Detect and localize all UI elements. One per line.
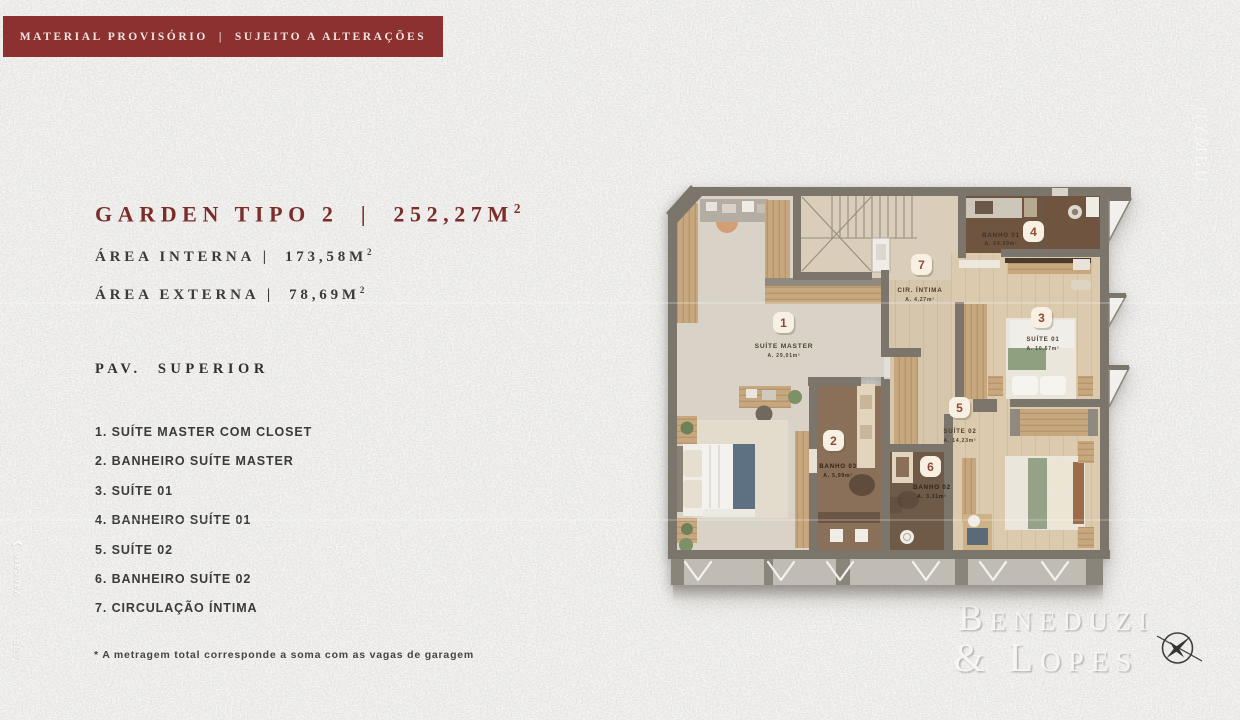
svg-text:2: 2 <box>830 434 837 448</box>
svg-text:7: 7 <box>918 258 925 272</box>
svg-text:A. 04,09m²: A. 04,09m² <box>984 241 1017 247</box>
svg-text:A. 5,99m²: A. 5,99m² <box>823 473 852 479</box>
svg-text:A. 29,01m²: A. 29,01m² <box>767 353 800 359</box>
svg-text:SUÍTE 02: SUÍTE 02 <box>943 427 976 435</box>
svg-text:6: 6 <box>927 460 934 474</box>
svg-text:1: 1 <box>780 316 787 330</box>
svg-text:A. 3,31m²: A. 3,31m² <box>917 494 946 500</box>
svg-text:A. 14,23m²: A. 14,23m² <box>943 438 976 444</box>
svg-text:BANHO 02: BANHO 02 <box>913 484 951 491</box>
svg-text:SUÍTE MASTER: SUÍTE MASTER <box>755 341 814 350</box>
svg-text:BANHO 03: BANHO 03 <box>819 463 857 470</box>
svg-text:SUÍTE 01: SUÍTE 01 <box>1026 335 1059 343</box>
svg-text:CIR. ÍNTIMA: CIR. ÍNTIMA <box>897 285 942 294</box>
svg-text:3: 3 <box>1038 311 1045 325</box>
svg-text:A. 10,57m²: A. 10,57m² <box>1026 346 1059 352</box>
svg-text:BANHO 01: BANHO 01 <box>982 232 1020 239</box>
svg-text:4: 4 <box>1030 225 1037 239</box>
svg-text:5: 5 <box>956 401 963 415</box>
